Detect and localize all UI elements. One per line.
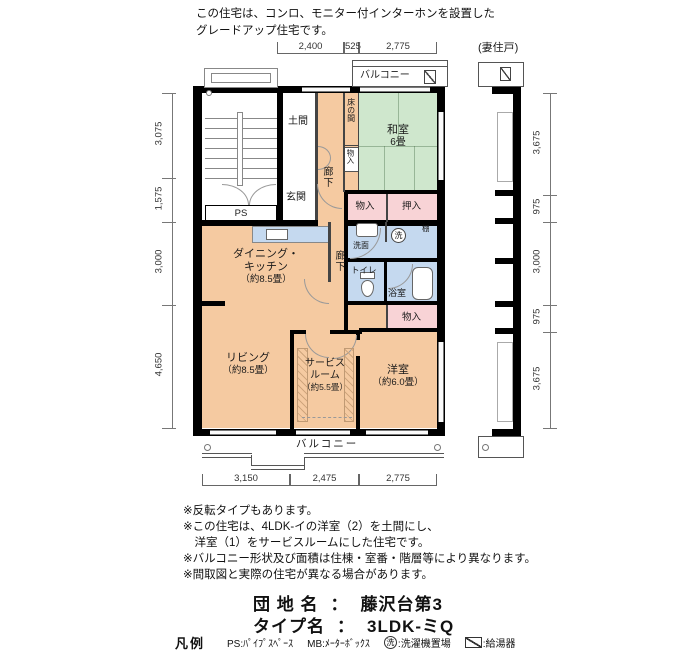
wall-living-service	[290, 330, 294, 434]
service-dashed-line	[302, 417, 352, 418]
balcony-rail	[202, 453, 252, 458]
tana-label: 棚	[422, 224, 430, 233]
western-label: 洋室 （約6.0畳）	[359, 364, 437, 389]
note-line: ※この住宅は、4LDK-イの洋室（2）を土間にし、	[183, 519, 536, 535]
dim-right-5: 3,675	[532, 357, 543, 401]
neighbor-wall-stub	[495, 328, 513, 334]
neighbor-wall	[513, 87, 521, 436]
wall-wash-left	[344, 194, 348, 332]
window-service	[296, 430, 350, 435]
kitchen-sink-icon	[266, 229, 288, 240]
wall-washitsu-bottom	[344, 190, 437, 194]
doma-label: 土間	[288, 116, 308, 128]
dk-label: ダイニング・ キッチン （約8.5畳）	[214, 248, 318, 286]
toilet-label: トイレ	[351, 265, 377, 275]
corridor-label-upper: 廊下	[320, 166, 332, 188]
neighbor-wall-stub	[495, 301, 513, 307]
dim-top-1-value: 2,400	[299, 41, 323, 52]
note-line: 洋室（1）をサービスルームにした住宅です。	[183, 535, 536, 551]
wall-dk-corridor	[328, 222, 331, 282]
tatami-line	[384, 146, 385, 190]
balcony-rail	[304, 453, 444, 458]
legend-ps: PS:ﾊﾟｲﾌﾟｽﾍﾟｰｽ	[227, 635, 293, 650]
dim-left-2: 1,575	[154, 177, 165, 221]
wall-left	[193, 86, 202, 436]
dim-left-line	[172, 93, 173, 428]
dim-tick	[162, 222, 176, 223]
legend: 凡例 PS:ﾊﾟｲﾌﾟｽﾍﾟｰｽ MB:ﾒｰﾀｰﾎﾞｯｸｽ 洗 :洗濯機置場 :…	[175, 633, 529, 650]
balcony-rail	[251, 465, 305, 470]
dim-tick	[162, 428, 176, 429]
bath-label: 浴室	[388, 288, 406, 299]
living-label: リビング （約8.5畳）	[202, 352, 294, 377]
dim-left-3: 3,000	[154, 240, 165, 284]
dim-top-1: 2,400	[277, 42, 344, 54]
balcony-top-rail-line	[352, 66, 448, 67]
window-right-washitsu	[438, 112, 444, 180]
dim-tick	[543, 332, 557, 333]
wall-tokonoma-left	[343, 93, 345, 192]
dim-bottom-3-value: 2,775	[386, 473, 410, 484]
header-line-2: グレードアップ住宅です。	[196, 23, 495, 40]
legend-heading: 凡例	[175, 633, 205, 650]
dim-tick	[543, 195, 557, 196]
dim-tick	[543, 93, 557, 94]
wall-western-top	[359, 328, 437, 332]
corridor-label-lower: 廊下	[332, 250, 344, 272]
wall-bath-bottom	[348, 301, 437, 305]
legend-mb: MB:ﾒｰﾀｰﾎﾞｯｸｽ	[307, 635, 370, 650]
dim-tick	[162, 305, 176, 306]
dim-tick	[543, 222, 557, 223]
window-western	[366, 430, 428, 435]
dk-size: （約8.5畳）	[214, 274, 318, 285]
header-line-1: この住宅は、コンロ、モニター付インターホンを設置した	[196, 6, 495, 23]
drain-icon	[206, 90, 212, 96]
window-living	[210, 430, 276, 435]
note-line: ※バルコニー形状及び面積は住棟・室番・階層等により異なります。	[183, 551, 536, 567]
wall-stairwell	[277, 86, 283, 222]
legend-washer: 洗 :洗濯機置場	[384, 635, 451, 650]
dim-top-3: 2,775	[359, 42, 437, 54]
neighbor-wall-stub	[492, 87, 521, 94]
western-size: （約6.0畳）	[359, 377, 437, 388]
wall-living-stub	[193, 301, 225, 306]
ps-label: PS	[205, 208, 277, 219]
dim-tick	[543, 305, 557, 306]
dim-tick	[543, 428, 557, 429]
tokonoma-label: 床の間	[346, 98, 356, 122]
window-top-doma	[302, 87, 350, 92]
living-size: （約8.5畳）	[202, 365, 294, 376]
dim-bottom-1: 3,150	[202, 474, 290, 486]
neighbor-drain-icon	[482, 444, 489, 451]
monoire-hall-label: 物入	[344, 201, 386, 212]
header-description: この住宅は、コンロ、モニター付インターホンを設置した グレードアップ住宅です。	[196, 6, 495, 39]
genkan-label: 玄関	[286, 192, 306, 204]
stair-rail-icon	[237, 112, 243, 186]
bathtub-icon	[412, 267, 433, 300]
wall-tokonoma-bottom	[344, 145, 359, 146]
neighbor-wall-stub	[492, 429, 521, 436]
service-size: （約5.5畳）	[296, 382, 354, 392]
washitsu-label: 和室 6畳	[359, 124, 437, 149]
wall-senmen-washer	[385, 222, 387, 242]
dk-name-1: ダイニング・	[214, 248, 318, 261]
wall-toilet-bath	[384, 262, 387, 305]
neighbor-wall-stub	[495, 190, 513, 196]
dim-top-2: 525	[344, 42, 359, 54]
dim-right-3: 3,000	[532, 240, 543, 284]
service-name-1: サービス	[296, 358, 354, 370]
dim-right-2: 975	[532, 185, 543, 229]
legend-heater: :給湯器	[465, 635, 516, 650]
dim-tick	[162, 93, 176, 94]
tokonoma-closet-label: 物入	[346, 149, 355, 164]
neighbor-wall-stub	[495, 258, 513, 264]
washer-legend-icon: 洗	[384, 636, 397, 649]
floor-plan-page: この住宅は、コンロ、モニター付インターホンを設置した グレードアップ住宅です。 …	[0, 0, 700, 650]
oshiire-label: 押入	[386, 201, 437, 212]
balcony-top-label: バルコニー	[360, 70, 410, 82]
notes-block: ※反転タイプもあります。 ※この住宅は、4LDK-イの洋室（2）を土間にし、 洋…	[183, 503, 536, 583]
neighbor-water-heater-icon	[500, 67, 511, 81]
note-line: ※間取図と実際の住宅が異なる場合があります。	[183, 567, 536, 583]
washer-place-icon: 洗	[391, 228, 406, 243]
service-name-2: ルーム	[296, 370, 354, 382]
western-name: 洋室	[359, 364, 437, 377]
living-name: リビング	[202, 352, 294, 365]
neighbor-window	[497, 112, 513, 182]
neighbor-unit-label: (妻住戸)	[478, 42, 518, 55]
heater-legend-icon	[465, 637, 482, 648]
senmen-label: 洗面	[353, 241, 369, 251]
window-right-western	[438, 342, 444, 422]
dk-name-2: キッチン	[214, 261, 318, 274]
monoire-bottom-label: 物入	[386, 312, 437, 323]
balcony-drain-icon	[204, 444, 211, 451]
washitsu-size: 6畳	[359, 137, 437, 149]
parapet-inner	[211, 73, 271, 83]
dim-right-1: 3,675	[532, 121, 543, 165]
balcony-bottom-label: バルコニー	[296, 438, 358, 451]
legend-heater-text: :給湯器	[483, 635, 516, 650]
legend-washer-text: :洗濯機置場	[398, 635, 451, 650]
dim-bottom-2-value: 2,475	[313, 473, 337, 484]
balcony-drain-icon	[434, 444, 441, 451]
note-line: ※反転タイプもあります。	[183, 503, 536, 519]
window-washitsu-balcony	[360, 87, 430, 92]
dim-top-3-value: 2,775	[386, 41, 410, 52]
dim-left-1: 3,075	[154, 112, 165, 156]
water-heater-icon	[424, 70, 436, 84]
kitchen-counter	[252, 226, 330, 243]
washbasin-icon	[356, 223, 378, 237]
tatami-line	[414, 146, 415, 190]
dim-left-4: 4,650	[154, 343, 165, 387]
washitsu-name: 和室	[359, 124, 437, 137]
neighbor-window	[497, 342, 513, 422]
dim-right-line	[550, 93, 551, 428]
service-label: サービス ルーム （約5.5畳）	[296, 358, 354, 392]
dim-bottom-1-value: 3,150	[234, 473, 258, 484]
wall-wash-bottom	[348, 258, 437, 262]
dim-bottom-3: 2,775	[359, 474, 437, 486]
dim-bottom-2: 2,475	[290, 474, 359, 486]
dim-right-4: 975	[532, 295, 543, 339]
neighbor-wall-stub	[495, 218, 513, 224]
